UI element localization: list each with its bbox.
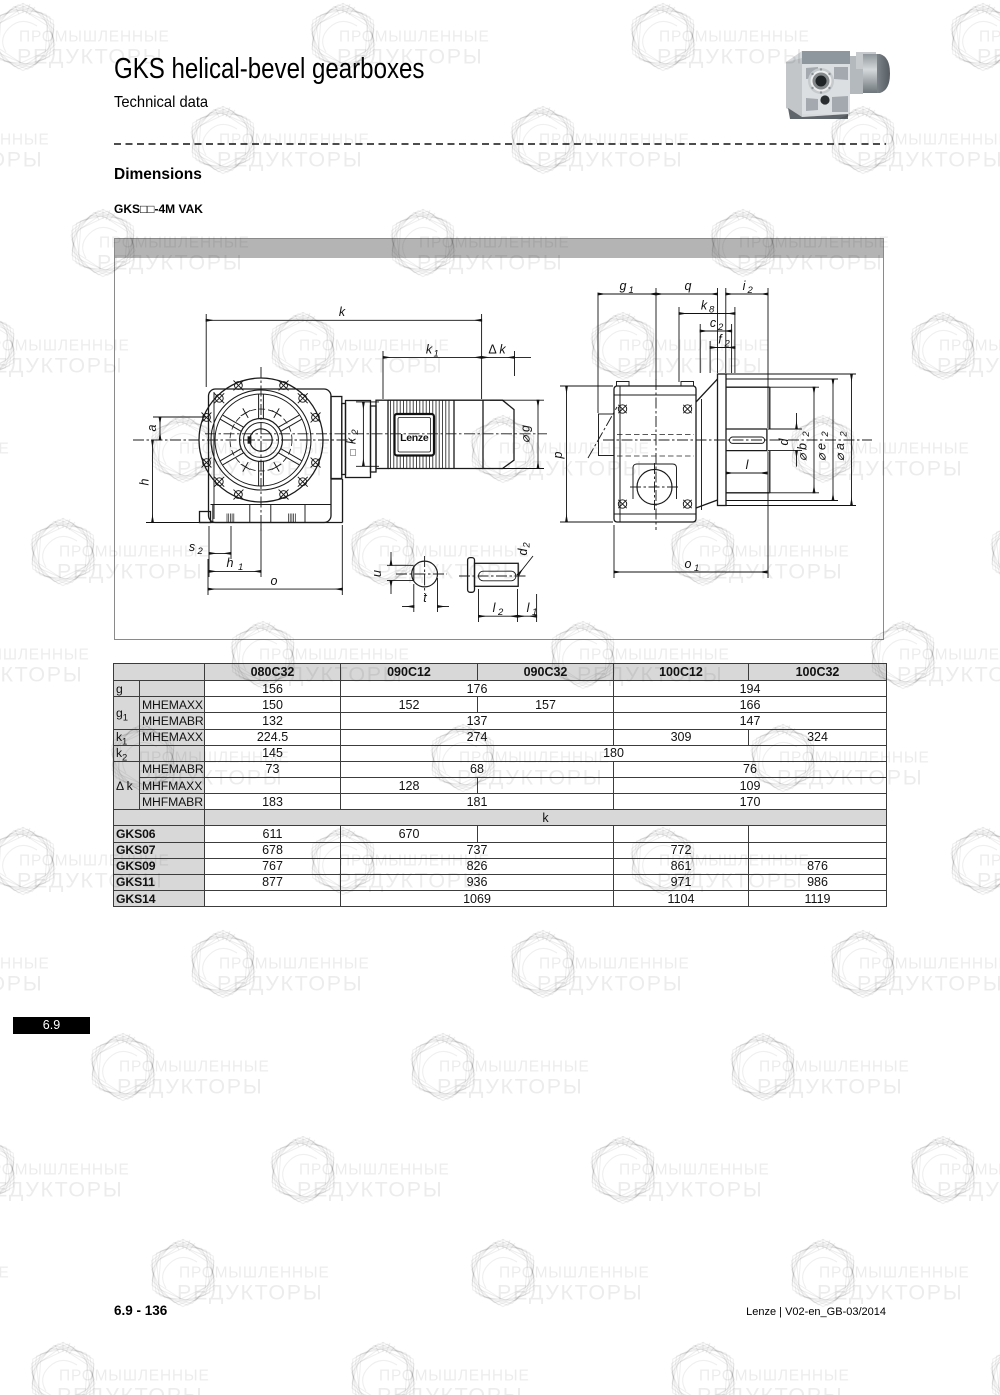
svg-text:⌀ b: ⌀ b [796,443,810,461]
svg-text:⌀ a: ⌀ a [833,443,847,461]
svg-text:h: h [227,556,234,570]
svg-text:i: i [743,279,747,293]
svg-text:u: u [370,570,384,577]
svg-text:2: 2 [839,431,850,438]
svg-text:⌀ e: ⌀ e [815,443,829,461]
svg-text:s: s [189,540,195,554]
svg-text:2: 2 [350,429,361,436]
svg-text:1: 1 [532,607,537,618]
svg-text:k: k [345,437,359,444]
svg-text:k: k [426,343,433,357]
svg-text:l: l [527,601,531,615]
svg-text:2: 2 [717,322,724,333]
svg-text:t: t [423,591,427,605]
svg-text:⌀ g: ⌀ g [519,425,533,443]
svg-text:g: g [620,279,627,293]
svg-text:q: q [685,279,692,293]
svg-text:d: d [777,437,791,445]
svg-text:a: a [145,424,159,431]
svg-text:k: k [701,299,708,313]
svg-text:c: c [710,316,717,330]
svg-text:2: 2 [801,431,812,438]
svg-text:o: o [271,574,278,588]
svg-text:l: l [493,601,497,615]
svg-text:□: □ [348,449,359,455]
svg-text:1: 1 [238,562,243,573]
svg-text:f: f [718,333,723,347]
svg-text:2: 2 [497,607,504,618]
svg-text:k: k [339,305,346,319]
svg-text:p: p [551,451,565,459]
svg-text:2: 2 [522,542,533,549]
svg-text:2: 2 [820,431,831,438]
svg-text:o: o [685,557,692,571]
svg-text:1: 1 [694,563,699,574]
svg-text:1: 1 [629,285,634,296]
svg-text:2: 2 [747,285,754,296]
svg-text:l: l [746,458,750,472]
svg-text:d: d [516,547,530,555]
svg-text:8: 8 [709,305,715,316]
svg-text:h: h [138,478,152,485]
svg-text:2: 2 [724,339,731,350]
svg-text:2: 2 [197,546,204,557]
svg-text:Δ: Δ [488,343,496,357]
svg-text:1: 1 [434,349,439,360]
svg-text:k: k [499,343,506,357]
